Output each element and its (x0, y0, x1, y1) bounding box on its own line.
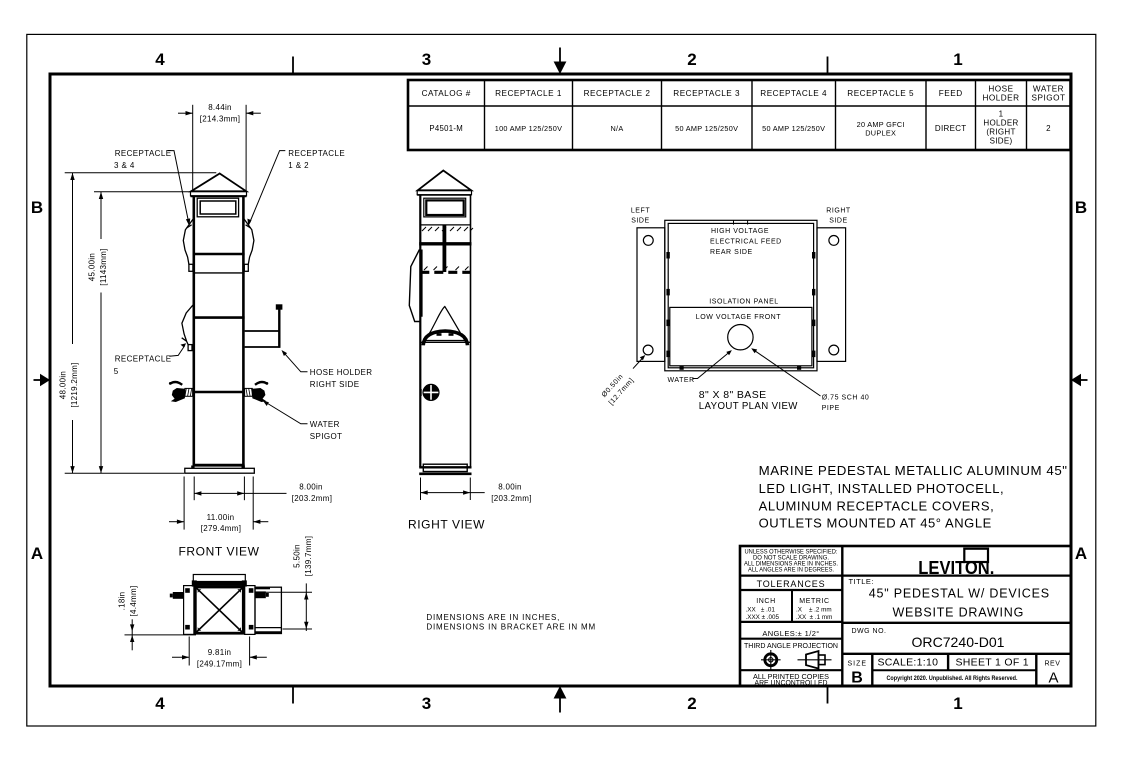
svg-text:2: 2 (1046, 124, 1051, 133)
svg-text:METRIC: METRIC (799, 598, 829, 605)
svg-text:B: B (1075, 198, 1087, 217)
svg-text:LOW VOLTAGE FRONT: LOW VOLTAGE FRONT (696, 314, 781, 321)
svg-text:ALUMINUM RECEPTACLE COVERS,: ALUMINUM RECEPTACLE COVERS, (759, 498, 995, 513)
svg-text:RECEPTACLE 2: RECEPTACLE 2 (584, 89, 651, 98)
svg-text:ORC7240-D01: ORC7240-D01 (912, 634, 1005, 650)
svg-text:RECEPTACLE: RECEPTACLE (288, 149, 345, 158)
svg-text:SPIGOT: SPIGOT (310, 432, 343, 441)
svg-text:RECEPTACLE 3: RECEPTACLE 3 (673, 89, 740, 98)
svg-text:48.00in: 48.00in (59, 371, 68, 399)
svg-text:ANGLES:± 1/2°: ANGLES:± 1/2° (762, 629, 819, 638)
svg-text:WATER: WATER (668, 377, 695, 384)
svg-text:50 AMP 125/250V: 50 AMP 125/250V (762, 124, 825, 133)
svg-text:CATALOG #: CATALOG # (422, 89, 471, 98)
svg-text:SIZE: SIZE (848, 660, 868, 667)
svg-text:RIGHT: RIGHT (826, 207, 851, 214)
svg-text:4: 4 (155, 694, 165, 713)
svg-text:3 & 4: 3 & 4 (114, 161, 135, 170)
svg-text:PIPE: PIPE (822, 405, 840, 412)
svg-text:DIRECT: DIRECT (935, 124, 967, 133)
svg-text:SPIGOT: SPIGOT (1032, 94, 1066, 103)
svg-text:1: 1 (953, 50, 962, 69)
svg-text:TITLE:: TITLE: (849, 577, 875, 586)
svg-text:ISOLATION PANEL: ISOLATION PANEL (709, 299, 778, 306)
svg-text:RIGHT SIDE: RIGHT SIDE (310, 380, 360, 389)
svg-text:N/A: N/A (610, 124, 623, 133)
svg-text:REAR SIDE: REAR SIDE (710, 249, 753, 256)
svg-text:4: 4 (155, 50, 165, 69)
svg-text:1: 1 (953, 694, 962, 713)
svg-text:HOLDER: HOLDER (983, 119, 1018, 128)
svg-text:[1143mm]: [1143mm] (99, 248, 108, 285)
svg-text:HIGH VOLTAGE: HIGH VOLTAGE (711, 228, 769, 235)
svg-text:B: B (851, 670, 863, 687)
svg-text:TOLERANCES: TOLERANCES (757, 579, 826, 589)
svg-text:LED LIGHT, INSTALLED PHOTOCELL: LED LIGHT, INSTALLED PHOTOCELL, (759, 481, 1005, 496)
svg-text:.XX ± .1 mm: .XX ± .1 mm (796, 614, 832, 621)
svg-text:A: A (31, 544, 43, 563)
svg-text:[203.2mm]: [203.2mm] (292, 494, 333, 503)
svg-text:8.44in: 8.44in (208, 103, 232, 112)
svg-text:50 AMP 125/250V: 50 AMP 125/250V (675, 124, 738, 133)
svg-text:(RIGHT: (RIGHT (986, 128, 1015, 137)
svg-text:FEED: FEED (939, 89, 963, 98)
svg-text:3: 3 (422, 50, 431, 69)
svg-text:Ø.75 SCH 40: Ø.75 SCH 40 (822, 395, 870, 402)
svg-text:[1219.2mm]: [1219.2mm] (70, 362, 79, 407)
svg-text:DUPLEX: DUPLEX (865, 129, 896, 138)
svg-text:3: 3 (422, 694, 431, 713)
svg-text:REV: REV (1045, 660, 1061, 667)
svg-text:8.00in: 8.00in (299, 482, 323, 491)
svg-text:FRONT VIEW: FRONT VIEW (178, 545, 259, 559)
svg-text:WATER: WATER (1033, 85, 1064, 94)
svg-text:DIMENSIONS IN BRACKET ARE IN M: DIMENSIONS IN BRACKET ARE IN MM (426, 623, 596, 632)
svg-text:1: 1 (999, 110, 1004, 119)
svg-text:B: B (31, 198, 43, 217)
svg-text:DIMENSIONS ARE IN INCHES,: DIMENSIONS ARE IN INCHES, (426, 613, 560, 622)
svg-text:[203.2mm]: [203.2mm] (491, 494, 532, 503)
svg-text:HOSE: HOSE (988, 85, 1013, 94)
svg-text:DWG NO.: DWG NO. (852, 628, 887, 635)
svg-text:8.00in: 8.00in (498, 482, 522, 491)
svg-text:ELECTRICAL FEED: ELECTRICAL FEED (710, 239, 782, 246)
svg-text:HOSE HOLDER: HOSE HOLDER (310, 368, 373, 377)
svg-text:OUTLETS MOUNTED AT 45° ANGLE: OUTLETS MOUNTED AT 45° ANGLE (759, 516, 992, 531)
svg-text:8" X 8" BASE: 8" X 8" BASE (699, 389, 767, 401)
svg-text:.XXX ± .005: .XXX ± .005 (746, 614, 780, 621)
svg-text:INCH: INCH (756, 598, 776, 605)
svg-text:RECEPTACLE 4: RECEPTACLE 4 (760, 89, 827, 98)
svg-text:SIDE): SIDE) (990, 137, 1013, 146)
svg-text:SIDE: SIDE (631, 218, 650, 225)
svg-text:WATER: WATER (310, 420, 340, 429)
svg-text:RECEPTACLE 1: RECEPTACLE 1 (495, 89, 562, 98)
svg-text:HOLDER: HOLDER (982, 94, 1019, 103)
svg-text:2: 2 (687, 694, 696, 713)
svg-text:RECEPTACLE: RECEPTACLE (115, 149, 172, 158)
svg-text:RECEPTACLE: RECEPTACLE (115, 354, 172, 363)
svg-text:SHEET 1 OF 1: SHEET 1 OF 1 (956, 656, 1029, 668)
svg-text:2: 2 (687, 50, 696, 69)
svg-text:RIGHT VIEW: RIGHT VIEW (408, 518, 485, 532)
svg-text:RECEPTACLE 5: RECEPTACLE 5 (847, 89, 914, 98)
svg-text:A: A (1048, 670, 1058, 687)
svg-text:[214.3mm]: [214.3mm] (200, 115, 241, 124)
svg-text:[249.17mm]: [249.17mm] (197, 660, 242, 669)
svg-text:.X ± .2 mm: .X ± .2 mm (796, 607, 832, 614)
svg-text:5: 5 (114, 367, 119, 376)
svg-text:100 AMP 125/250V: 100 AMP 125/250V (495, 124, 563, 133)
svg-text:45" PEDESTAL W/ DEVICES: 45" PEDESTAL W/ DEVICES (869, 587, 1050, 601)
svg-text:.XX ± .01: .XX ± .01 (746, 607, 776, 614)
svg-text:[279.4mm]: [279.4mm] (201, 524, 242, 533)
svg-text:A: A (1075, 544, 1087, 563)
svg-text:MARINE PEDESTAL METALLIC ALUMI: MARINE PEDESTAL METALLIC ALUMINUM 45" (759, 463, 1068, 478)
svg-text:Copyright 2020. Unpublished. A: Copyright 2020. Unpublished. All Rights … (887, 675, 1018, 682)
svg-text:WEBSITE DRAWING: WEBSITE DRAWING (892, 605, 1024, 619)
svg-text:ARE UNCONTROLLED: ARE UNCONTROLLED (755, 678, 828, 687)
svg-text:[4.4mm]: [4.4mm] (129, 586, 138, 617)
svg-text:THIRD ANGLE PROJECTION: THIRD ANGLE PROJECTION (744, 643, 838, 650)
svg-text:45.00in: 45.00in (88, 253, 97, 281)
svg-text:LAYOUT PLAN VIEW: LAYOUT PLAN VIEW (699, 400, 798, 412)
svg-text:1 & 2: 1 & 2 (288, 161, 309, 170)
svg-text:9.81in: 9.81in (208, 648, 232, 657)
svg-text:[139.7mm]: [139.7mm] (304, 536, 313, 577)
svg-text:11.00in: 11.00in (207, 513, 235, 522)
svg-text:SCALE:1:10: SCALE:1:10 (878, 656, 939, 668)
svg-text:.18in: .18in (118, 592, 127, 611)
svg-text:5.50in: 5.50in (293, 544, 302, 568)
svg-text:ALL ANGLES ARE IN DEGREES.: ALL ANGLES ARE IN DEGREES. (748, 567, 834, 574)
svg-text:P4501-M: P4501-M (429, 124, 463, 133)
svg-text:SIDE: SIDE (829, 218, 848, 225)
svg-text:LEFT: LEFT (631, 207, 650, 214)
